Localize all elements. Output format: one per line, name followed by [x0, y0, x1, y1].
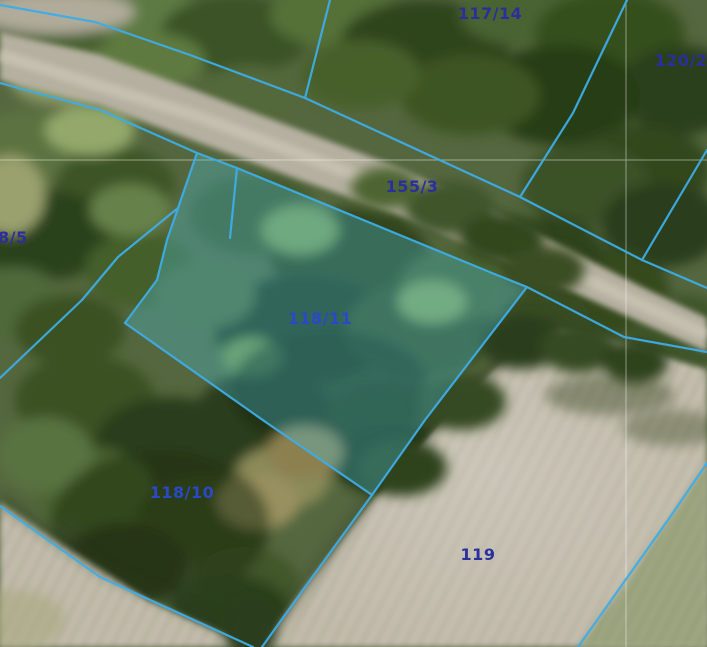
parcel-label-117-14: 117/14	[458, 4, 523, 23]
parcel-label-118-10: 118/10	[150, 483, 215, 502]
cadastral-map-canvas[interactable]: 117/14 120/2 155/3 8/5 118/11 118/10 119	[0, 0, 707, 647]
parcel-label-118-11: 118/11	[288, 309, 353, 328]
parcel-label-119: 119	[461, 545, 496, 564]
parcel-label-155-3: 155/3	[386, 177, 439, 196]
parcel-label-8-5: 8/5	[0, 228, 28, 247]
parcel-label-120-2: 120/2	[655, 51, 707, 70]
map-viewport[interactable]: 117/14 120/2 155/3 8/5 118/11 118/10 119	[0, 0, 707, 647]
